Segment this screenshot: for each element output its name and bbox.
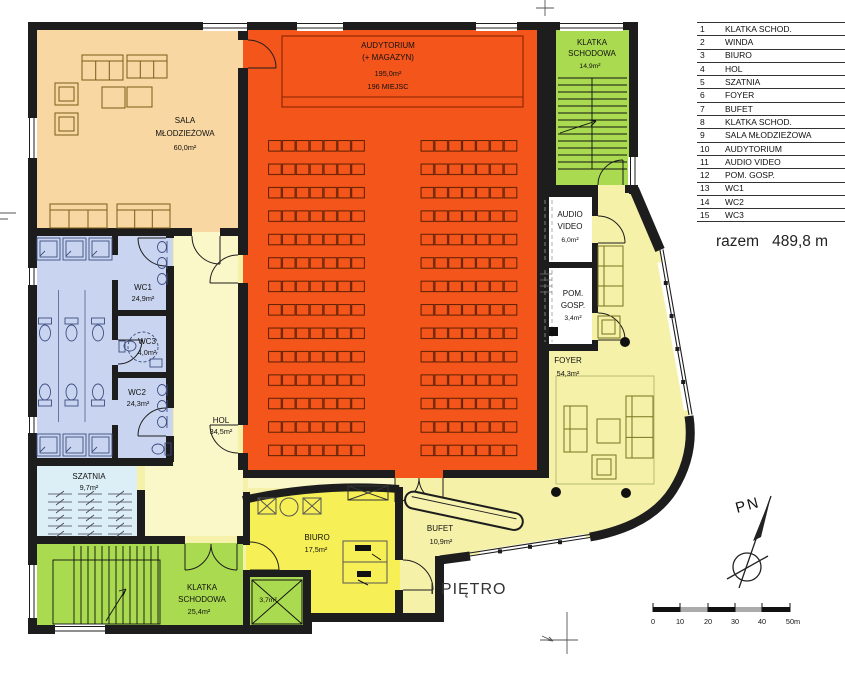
room-label-audio-video: AUDIO: [557, 210, 582, 219]
north-label: PN: [734, 494, 762, 517]
room-label-audytorium: AUDYTORIUM: [361, 41, 415, 50]
legend-table: 1KLATKA SCHOD. 2WINDA 3BIURO 4HOL 5SZATN…: [697, 22, 845, 222]
legend-row: 13WC1: [697, 182, 845, 195]
svg-text:14,9m²: 14,9m²: [579, 63, 601, 70]
room-label-wc1: WC1: [134, 283, 152, 292]
scale-bar: 0 10 20 30 40 50m: [651, 603, 800, 626]
svg-text:VIDEO: VIDEO: [558, 222, 583, 231]
svg-text:20: 20: [704, 617, 712, 626]
room-wc-block: [32, 232, 173, 462]
svg-text:3,4m²: 3,4m²: [564, 315, 582, 322]
legend-row: 7BUFET: [697, 102, 845, 115]
svg-text:34,5m²: 34,5m²: [210, 427, 233, 436]
legend-row: 9SALA MŁODZIEŻOWA: [697, 128, 845, 141]
svg-text:196 MIEJSC: 196 MIEJSC: [368, 82, 409, 91]
svg-text:30: 30: [731, 617, 739, 626]
svg-text:10,9m²: 10,9m²: [430, 537, 453, 546]
svg-text:10: 10: [676, 617, 684, 626]
svg-text:6,0m²: 6,0m²: [561, 237, 579, 244]
room-label-hol: HOL: [213, 416, 230, 425]
svg-text:24,3m²: 24,3m²: [127, 399, 150, 408]
legend-row: 11AUDIO VIDEO: [697, 155, 845, 168]
legend-row: 6FOYER: [697, 88, 845, 101]
svg-text:50m: 50m: [786, 617, 800, 626]
svg-text:MŁODZIEŻOWA: MŁODZIEŻOWA: [155, 129, 215, 138]
legend-row: 8KLATKA SCHOD.: [697, 115, 845, 128]
total-area: razem489,8 m: [716, 233, 828, 251]
svg-text:195,0m²: 195,0m²: [375, 69, 402, 78]
legend-row: 4HOL: [697, 62, 845, 75]
room-label-sala: SALA: [175, 116, 196, 125]
legend-row: 14WC2: [697, 195, 845, 208]
svg-text:SCHODOWA: SCHODOWA: [568, 49, 616, 58]
total-label: razem: [716, 233, 759, 251]
legend-row: 1KLATKA SCHOD.: [697, 22, 845, 35]
svg-text:17,5m²: 17,5m²: [305, 545, 328, 554]
room-label-wc2: WC2: [128, 388, 146, 397]
svg-text:40: 40: [758, 617, 766, 626]
legend-row: 3BIURO: [697, 49, 845, 62]
legend-row: 10AUDYTORIUM: [697, 142, 845, 155]
svg-text:25,4m²: 25,4m²: [188, 607, 211, 616]
room-label-szatnia: SZATNIA: [72, 472, 106, 481]
room-label-foyer: FOYER: [554, 356, 582, 365]
room-label-biuro: BIURO: [304, 533, 329, 542]
svg-text:(+ MAGAZYN): (+ MAGAZYN): [362, 53, 414, 62]
room-label-klatka-dolna: KLATKA: [187, 583, 218, 592]
room-label-wc3: WC3: [138, 337, 156, 346]
legend-row: 5SZATNIA: [697, 75, 845, 88]
total-value: 489,8 m: [772, 233, 828, 251]
legend-row: 15WC3: [697, 208, 845, 222]
svg-text:0: 0: [651, 617, 655, 626]
floor-plan-page: SALA MŁODZIEŻOWA 60,0m² AUDYTORIUM (+ MA…: [0, 0, 845, 684]
room-winda: [247, 573, 307, 625]
room-label-klatka-gorna: KLATKA: [577, 38, 608, 47]
svg-text:4,0m²: 4,0m²: [138, 348, 157, 357]
room-label-bufet: BUFET: [427, 524, 453, 533]
svg-text:9,7m²: 9,7m²: [80, 483, 99, 492]
legend-row: 2WINDA: [697, 35, 845, 48]
svg-text:SCHODOWA: SCHODOWA: [178, 595, 226, 604]
room-label-pom-gosp: POM.: [563, 289, 583, 298]
svg-text:60,0m²: 60,0m²: [174, 143, 197, 152]
svg-text:24,9m²: 24,9m²: [132, 294, 155, 303]
legend-row: 12POM. GOSP.: [697, 168, 845, 181]
north-arrow-icon: PN: [727, 494, 771, 588]
room-label-winda: 3,7m²: [259, 597, 277, 604]
floor-title: I PIĘTRO: [430, 581, 506, 599]
svg-text:GOSP.: GOSP.: [561, 301, 585, 310]
svg-text:54,3m²: 54,3m²: [557, 369, 580, 378]
